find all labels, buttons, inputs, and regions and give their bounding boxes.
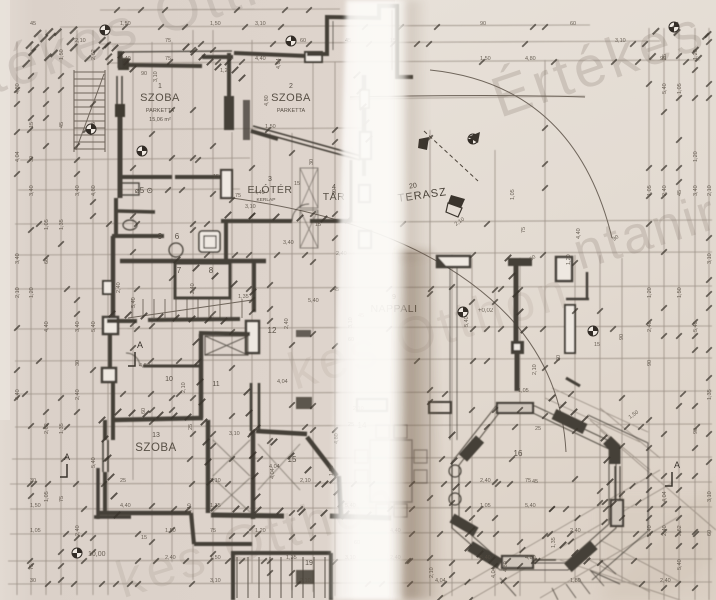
svg-text:45: 45 bbox=[30, 21, 36, 27]
svg-text:1: 1 bbox=[158, 83, 162, 90]
svg-text:3,10: 3,10 bbox=[707, 491, 713, 502]
svg-text:30: 30 bbox=[29, 156, 35, 162]
svg-text:25: 25 bbox=[535, 426, 541, 432]
svg-text:75: 75 bbox=[235, 193, 241, 199]
svg-text:KERLAP: KERLAP bbox=[257, 197, 276, 203]
svg-text:15,06 m²: 15,06 m² bbox=[149, 117, 171, 123]
svg-text:45: 45 bbox=[532, 479, 538, 485]
svg-text:1,20: 1,20 bbox=[29, 287, 35, 298]
svg-text:3,10: 3,10 bbox=[229, 431, 240, 437]
svg-text:1,35: 1,35 bbox=[707, 389, 713, 400]
svg-text:19: 19 bbox=[305, 560, 313, 567]
svg-text:2,40: 2,40 bbox=[660, 578, 671, 584]
svg-text:1,05: 1,05 bbox=[647, 185, 653, 196]
svg-text:SZOBA: SZOBA bbox=[271, 92, 311, 104]
svg-text:1,20: 1,20 bbox=[255, 528, 266, 534]
svg-text:5,40: 5,40 bbox=[464, 316, 470, 327]
svg-text:1,05: 1,05 bbox=[677, 83, 683, 94]
svg-text:15: 15 bbox=[594, 342, 600, 348]
svg-text:5,40: 5,40 bbox=[693, 321, 699, 332]
svg-text:1,05: 1,05 bbox=[44, 219, 50, 230]
svg-text:5,40: 5,40 bbox=[662, 83, 668, 94]
svg-text:A: A bbox=[674, 460, 680, 470]
svg-text:2,10: 2,10 bbox=[707, 185, 713, 196]
svg-text:2,40: 2,40 bbox=[662, 525, 668, 536]
svg-text:2,40: 2,40 bbox=[116, 282, 122, 293]
svg-text:2,10: 2,10 bbox=[181, 382, 187, 393]
svg-text:1,20: 1,20 bbox=[220, 68, 231, 74]
svg-text:4,80: 4,80 bbox=[503, 561, 509, 572]
svg-text:90: 90 bbox=[693, 428, 699, 434]
svg-text:15: 15 bbox=[29, 122, 35, 128]
svg-text:ELÓTÉR: ELÓTÉR bbox=[247, 183, 292, 196]
svg-text:1,80: 1,80 bbox=[570, 578, 581, 584]
svg-text:3,10: 3,10 bbox=[615, 38, 626, 44]
svg-text:15: 15 bbox=[141, 535, 147, 541]
svg-text:PARKETTA: PARKETTA bbox=[277, 108, 306, 114]
svg-text:⌀5 ⊙: ⌀5 ⊙ bbox=[135, 186, 153, 195]
svg-text:4,80: 4,80 bbox=[525, 555, 536, 561]
svg-text:1,20: 1,20 bbox=[693, 151, 699, 162]
svg-text:5,40: 5,40 bbox=[91, 321, 97, 332]
svg-text:1,20: 1,20 bbox=[647, 287, 653, 298]
svg-text:90: 90 bbox=[619, 334, 625, 340]
svg-text:2,10: 2,10 bbox=[75, 38, 86, 44]
svg-text:8: 8 bbox=[209, 266, 214, 275]
svg-text:1,35: 1,35 bbox=[59, 219, 65, 230]
svg-text:90: 90 bbox=[480, 21, 486, 27]
svg-text:1,50: 1,50 bbox=[480, 56, 491, 62]
svg-text:1,05: 1,05 bbox=[480, 503, 491, 509]
svg-text:2,10: 2,10 bbox=[15, 287, 21, 298]
svg-text:3,10: 3,10 bbox=[153, 71, 159, 82]
svg-text:4,40: 4,40 bbox=[120, 503, 131, 509]
svg-text:75: 75 bbox=[165, 56, 171, 62]
svg-text:60: 60 bbox=[570, 21, 576, 27]
svg-text:75: 75 bbox=[165, 38, 171, 44]
svg-text:2,40: 2,40 bbox=[284, 318, 290, 329]
svg-text:10: 10 bbox=[165, 376, 173, 383]
svg-text:4,40: 4,40 bbox=[576, 228, 582, 239]
svg-text:1,35: 1,35 bbox=[551, 537, 557, 548]
svg-text:4,80: 4,80 bbox=[525, 56, 536, 62]
svg-text:5,40: 5,40 bbox=[308, 298, 319, 304]
svg-text:30: 30 bbox=[30, 478, 36, 484]
svg-text:12: 12 bbox=[268, 326, 277, 335]
svg-text:4,04: 4,04 bbox=[276, 58, 282, 69]
svg-text:3,10: 3,10 bbox=[255, 21, 266, 27]
svg-text:13: 13 bbox=[152, 432, 160, 439]
svg-text:75: 75 bbox=[59, 496, 65, 502]
svg-text:2,62: 2,62 bbox=[44, 423, 50, 434]
svg-text:3,40: 3,40 bbox=[693, 185, 699, 196]
svg-text:2,40: 2,40 bbox=[165, 555, 176, 561]
svg-text:10,00: 10,00 bbox=[88, 551, 106, 558]
svg-text:5,40: 5,40 bbox=[131, 297, 137, 308]
svg-text:1,50: 1,50 bbox=[120, 21, 131, 27]
svg-text:60: 60 bbox=[44, 258, 50, 264]
svg-text:SZOBA: SZOBA bbox=[135, 442, 176, 454]
svg-text:60: 60 bbox=[707, 530, 713, 536]
svg-text:1,50: 1,50 bbox=[210, 555, 221, 561]
svg-text:11: 11 bbox=[212, 381, 219, 388]
svg-text:2,62: 2,62 bbox=[677, 525, 683, 536]
svg-text:4,40: 4,40 bbox=[15, 389, 21, 400]
svg-text:1,50: 1,50 bbox=[210, 21, 221, 27]
svg-text:60: 60 bbox=[556, 355, 562, 361]
svg-text:4,04: 4,04 bbox=[662, 491, 668, 502]
svg-text:2,40: 2,40 bbox=[75, 389, 81, 400]
svg-text:2,40: 2,40 bbox=[570, 528, 581, 534]
svg-text:1,50: 1,50 bbox=[265, 124, 276, 130]
svg-text:3,40: 3,40 bbox=[75, 185, 81, 196]
svg-text:+0,02: +0,02 bbox=[478, 308, 494, 314]
svg-text:90: 90 bbox=[141, 71, 147, 77]
svg-text:PARKETTA: PARKETTA bbox=[146, 108, 175, 114]
svg-text:2,40: 2,40 bbox=[480, 478, 491, 484]
svg-text:3: 3 bbox=[268, 176, 272, 183]
svg-text:90: 90 bbox=[647, 360, 653, 366]
svg-text:1,35: 1,35 bbox=[286, 555, 297, 561]
svg-text:30: 30 bbox=[30, 578, 36, 584]
svg-text:45: 45 bbox=[59, 122, 65, 128]
svg-text:2,40: 2,40 bbox=[662, 185, 668, 196]
svg-text:3,10: 3,10 bbox=[210, 578, 221, 584]
svg-text:4,04: 4,04 bbox=[15, 151, 21, 162]
svg-text:1,05: 1,05 bbox=[518, 388, 529, 394]
svg-text:1,05: 1,05 bbox=[30, 528, 41, 534]
svg-text:2,40: 2,40 bbox=[647, 321, 653, 332]
svg-text:2,10: 2,10 bbox=[300, 578, 311, 584]
svg-text:1,50: 1,50 bbox=[30, 503, 41, 509]
svg-text:4,80: 4,80 bbox=[264, 95, 270, 106]
svg-text:3,10: 3,10 bbox=[245, 204, 256, 210]
svg-text:6: 6 bbox=[175, 232, 180, 241]
svg-text:5,40: 5,40 bbox=[525, 503, 536, 509]
svg-text:15: 15 bbox=[288, 455, 297, 464]
svg-text:5,40: 5,40 bbox=[91, 457, 97, 468]
svg-text:7: 7 bbox=[177, 266, 182, 275]
svg-text:1,50: 1,50 bbox=[677, 287, 683, 298]
svg-text:4: 4 bbox=[332, 184, 336, 191]
svg-text:2,10: 2,10 bbox=[300, 478, 311, 484]
svg-text:4,80: 4,80 bbox=[15, 83, 21, 94]
svg-text:3,40: 3,40 bbox=[283, 240, 294, 246]
svg-text:75: 75 bbox=[210, 528, 216, 534]
svg-text:A: A bbox=[137, 340, 143, 350]
svg-text:75: 75 bbox=[29, 564, 35, 570]
svg-text:4,40: 4,40 bbox=[44, 321, 50, 332]
svg-text:2: 2 bbox=[289, 83, 293, 90]
svg-text:5,40: 5,40 bbox=[480, 555, 491, 561]
svg-text:9: 9 bbox=[158, 232, 163, 241]
svg-text:1,05: 1,05 bbox=[510, 189, 516, 200]
svg-text:90: 90 bbox=[660, 56, 666, 62]
svg-text:2,40: 2,40 bbox=[75, 525, 81, 536]
svg-text:3,40: 3,40 bbox=[29, 185, 35, 196]
svg-text:4,80: 4,80 bbox=[91, 185, 97, 196]
svg-text:4,04: 4,04 bbox=[491, 567, 497, 578]
svg-text:1,50: 1,50 bbox=[59, 49, 65, 60]
svg-text:2,40: 2,40 bbox=[190, 283, 196, 294]
svg-text:45: 45 bbox=[677, 190, 683, 196]
svg-text:1,50: 1,50 bbox=[165, 528, 176, 534]
svg-text:SZOBA: SZOBA bbox=[140, 92, 180, 104]
svg-text:75: 75 bbox=[521, 227, 527, 233]
svg-text:1,35: 1,35 bbox=[59, 423, 65, 434]
svg-text:4,40: 4,40 bbox=[255, 56, 266, 62]
svg-text:25: 25 bbox=[120, 478, 126, 484]
svg-text:25: 25 bbox=[188, 424, 194, 430]
svg-text:1,20: 1,20 bbox=[566, 254, 572, 265]
svg-text:4,04: 4,04 bbox=[270, 468, 276, 479]
svg-text:3,40: 3,40 bbox=[187, 503, 193, 514]
svg-text:60: 60 bbox=[300, 38, 306, 44]
svg-text:15: 15 bbox=[315, 222, 321, 228]
svg-text:30: 30 bbox=[309, 159, 315, 165]
svg-text:15: 15 bbox=[294, 181, 300, 187]
svg-text:3,40: 3,40 bbox=[15, 253, 21, 264]
svg-text:75: 75 bbox=[525, 478, 531, 484]
svg-text:3,10: 3,10 bbox=[707, 253, 713, 264]
svg-text:4,80: 4,80 bbox=[139, 363, 150, 369]
svg-text:5,40: 5,40 bbox=[647, 525, 653, 536]
svg-text:1,05: 1,05 bbox=[44, 491, 50, 502]
svg-text:15: 15 bbox=[213, 174, 219, 180]
svg-text:4,04: 4,04 bbox=[277, 379, 288, 385]
svg-text:1,35: 1,35 bbox=[238, 294, 249, 300]
svg-text:30: 30 bbox=[75, 360, 81, 366]
svg-text:2,10: 2,10 bbox=[532, 364, 538, 375]
svg-text:5,40: 5,40 bbox=[677, 559, 683, 570]
svg-text:16: 16 bbox=[514, 449, 523, 458]
svg-text:3,40: 3,40 bbox=[75, 321, 81, 332]
svg-text:A: A bbox=[64, 452, 70, 462]
